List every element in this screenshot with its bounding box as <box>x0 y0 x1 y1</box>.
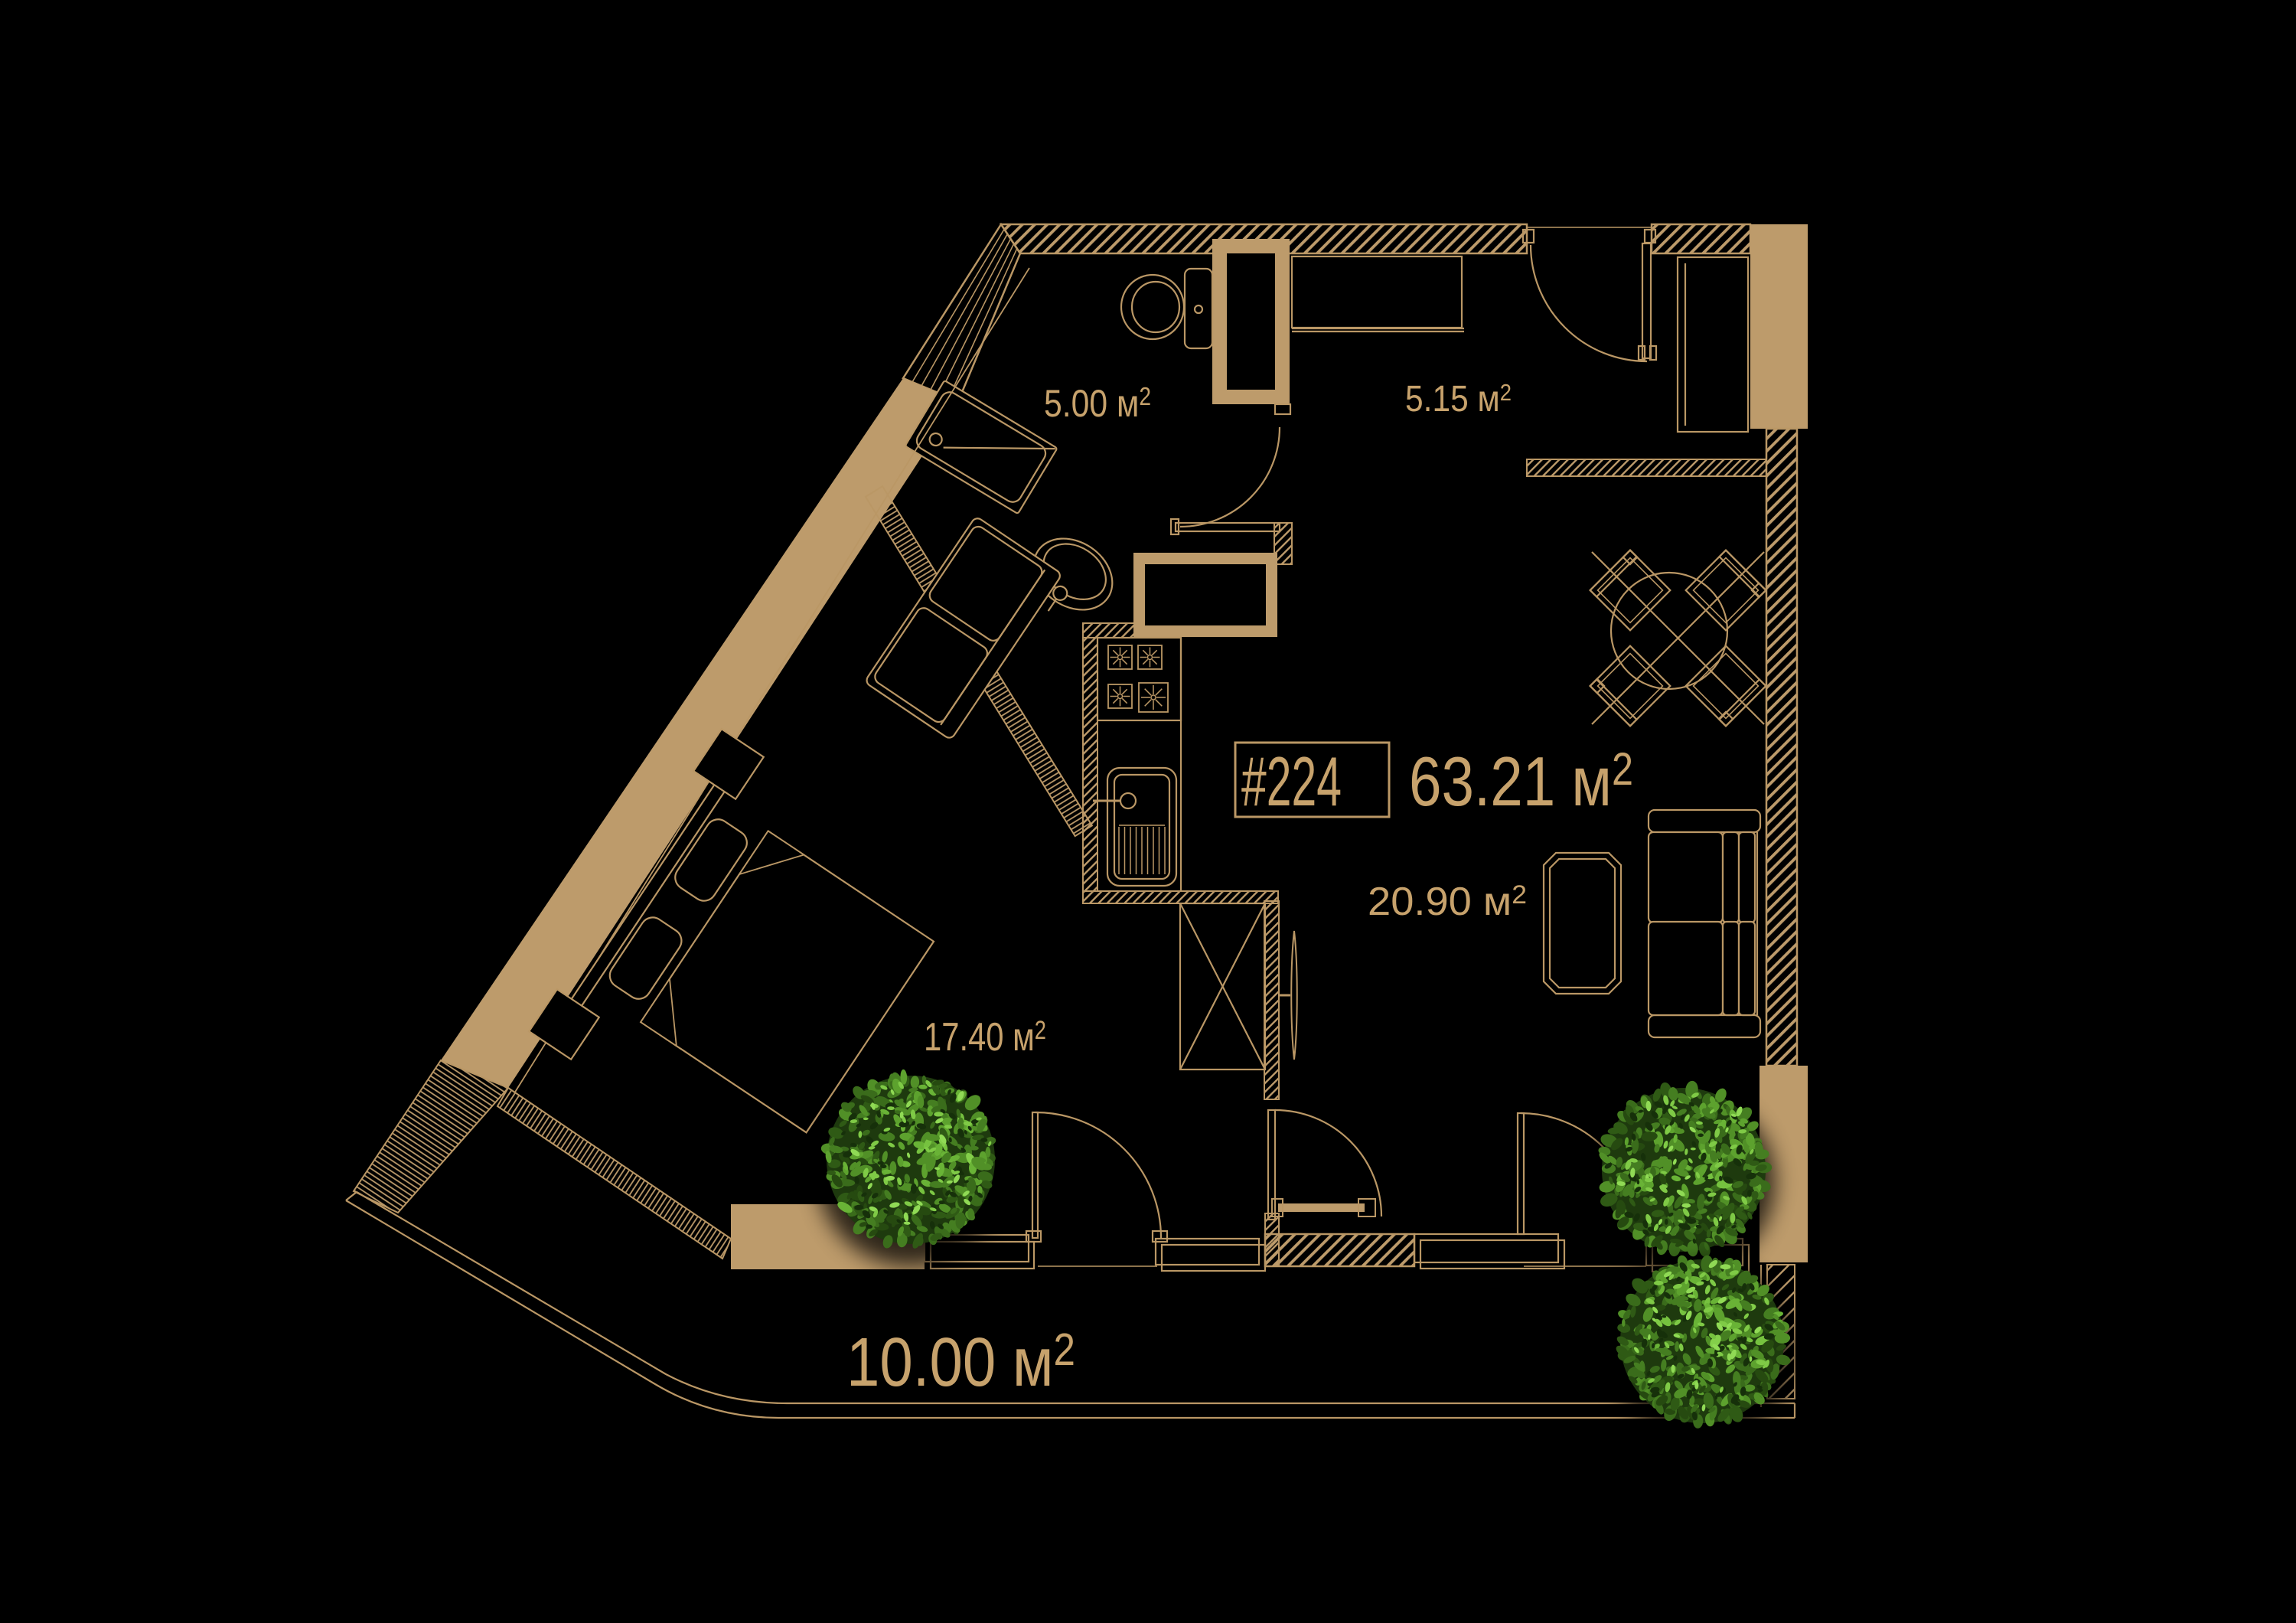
svg-text:20.90 м2: 20.90 м2 <box>1368 880 1527 924</box>
svg-text:10.00 м2: 10.00 м2 <box>846 1324 1075 1401</box>
svg-text:63.21 м2: 63.21 м2 <box>1409 743 1633 821</box>
svg-text:17.40 м2: 17.40 м2 <box>924 1015 1046 1060</box>
svg-text:5.15 м2: 5.15 м2 <box>1405 379 1512 420</box>
svg-text:#224: #224 <box>1241 743 1342 821</box>
svg-text:5.00 м2: 5.00 м2 <box>1044 382 1151 425</box>
